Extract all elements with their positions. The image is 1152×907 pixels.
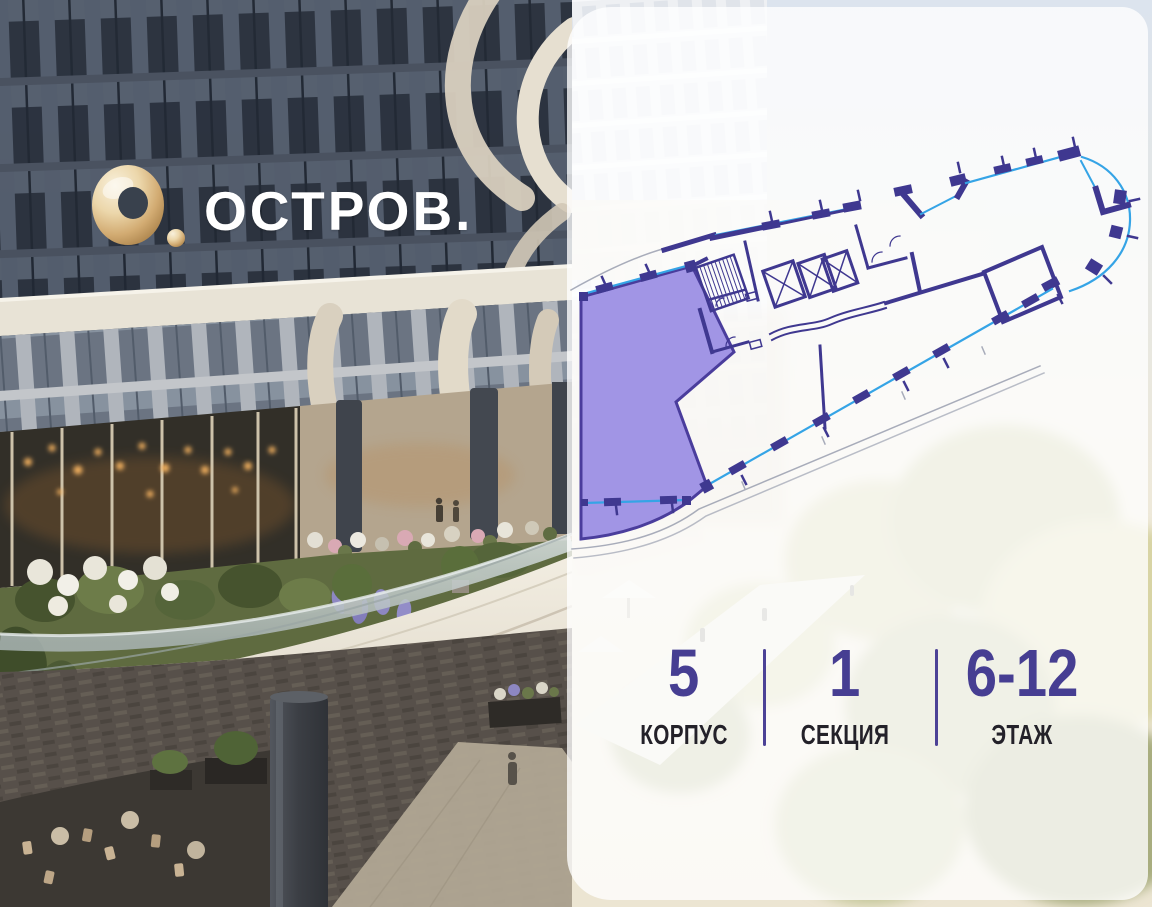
stat-floors: 6-12 ЭТАЖ: [947, 640, 1097, 749]
stat-section: 1 СЕКЦИЯ: [775, 640, 915, 749]
stats-divider: [935, 649, 938, 746]
section-label: СЕКЦИЯ: [793, 721, 897, 749]
real-estate-screen: ОСТРОВ.: [0, 0, 1152, 907]
building-number: 5: [668, 640, 699, 707]
floors-number: 6-12: [966, 640, 1079, 707]
building-label: КОРПУС: [632, 721, 736, 749]
stat-building: 5 КОРПУС: [614, 640, 754, 749]
stats-divider: [763, 649, 766, 746]
selection-stats: 5 КОРПУС 1 СЕКЦИЯ 6-12 ЭТАЖ: [0, 0, 1152, 907]
section-number: 1: [829, 640, 860, 707]
floors-label: ЭТАЖ: [967, 721, 1078, 749]
